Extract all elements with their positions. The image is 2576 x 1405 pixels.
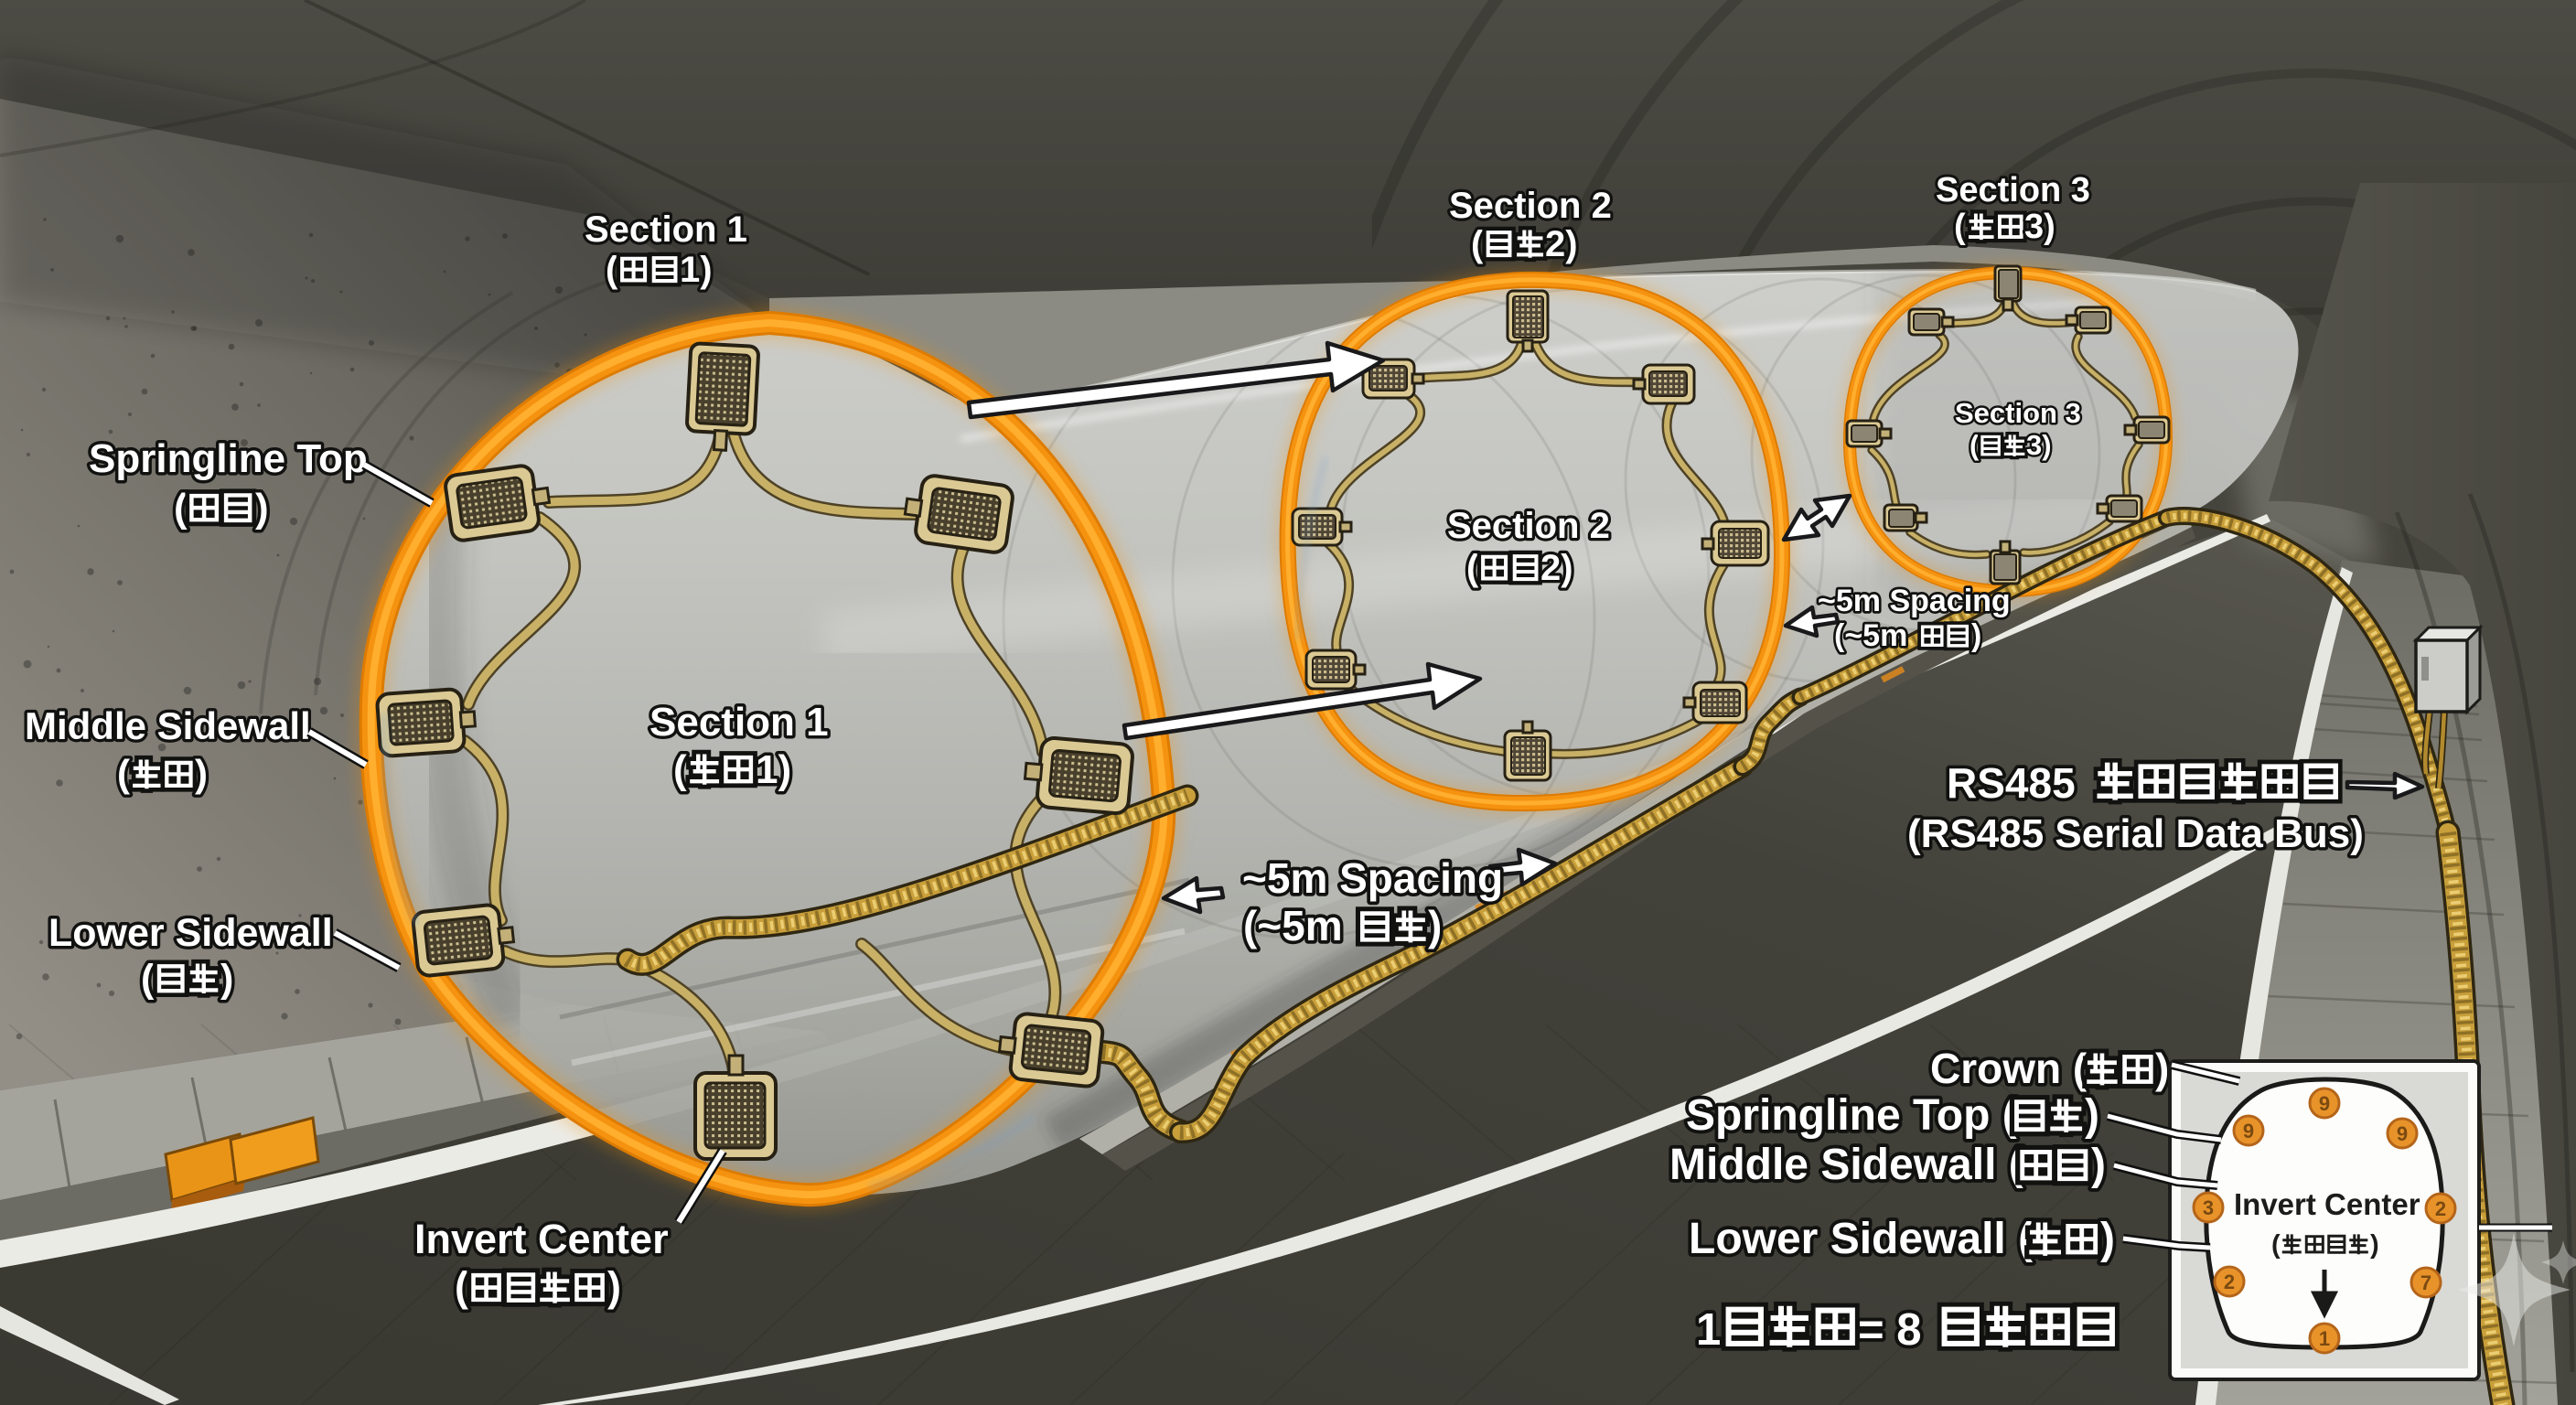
svg-text:): ): [1971, 618, 1981, 653]
svg-text:3): 3): [2024, 208, 2055, 246]
svg-text:(: (: [141, 957, 155, 1001]
svg-text:): ): [1428, 902, 1442, 949]
svg-text:): ): [607, 1263, 621, 1310]
svg-text:): ): [2091, 1141, 2106, 1189]
svg-text:7: 7: [2420, 1271, 2431, 1294]
svg-text:(: (: [1954, 208, 1966, 246]
svg-text:): ): [2100, 1215, 2115, 1263]
svg-text:9: 9: [2397, 1122, 2408, 1145]
svg-text:Invert Center: Invert Center: [2234, 1187, 2420, 1221]
svg-text:~5m Spacing: ~5m Spacing: [1242, 854, 1503, 902]
svg-text:(: (: [117, 752, 130, 795]
svg-text:2): 2): [1545, 224, 1578, 264]
svg-text:Lower Sidewall (: Lower Sidewall (: [1689, 1215, 2033, 1263]
svg-text:9: 9: [2319, 1092, 2330, 1115]
svg-text:): ): [220, 957, 233, 1001]
svg-text:1: 1: [2319, 1327, 2330, 1350]
svg-text:Section 3: Section 3: [1936, 171, 2090, 209]
svg-text:Section 2: Section 2: [1449, 186, 1612, 226]
svg-text:9: 9: [2243, 1120, 2254, 1142]
svg-text:): ): [2155, 1045, 2169, 1092]
svg-text:): ): [195, 752, 208, 795]
svg-text:(: (: [673, 747, 687, 792]
svg-text:(~5m: (~5m: [1834, 618, 1907, 653]
svg-text:(: (: [455, 1263, 468, 1310]
svg-text:1): 1): [680, 250, 713, 290]
svg-text:(RS485 Serial Data Bus): (RS485 Serial Data Bus): [1907, 811, 2364, 856]
svg-text:Lower Sidewall: Lower Sidewall: [48, 911, 333, 955]
svg-text:1: 1: [1696, 1305, 1721, 1355]
svg-text:): ): [255, 486, 269, 531]
svg-text:RS485: RS485: [1947, 759, 2076, 807]
svg-text:(~5m: (~5m: [1243, 902, 1343, 949]
svg-text:Springline Top: Springline Top: [89, 436, 368, 481]
svg-text:Section 3: Section 3: [1955, 397, 2081, 429]
svg-text:Springline Top (: Springline Top (: [1686, 1091, 2017, 1140]
svg-text:Middle Sidewall (: Middle Sidewall (: [1669, 1141, 2023, 1189]
svg-text:(: (: [1471, 224, 1484, 264]
svg-text:2: 2: [2224, 1271, 2235, 1293]
svg-text:2: 2: [2435, 1197, 2446, 1220]
svg-text:1): 1): [756, 747, 791, 792]
svg-text:Middle Sidewall: Middle Sidewall: [25, 704, 311, 747]
svg-text:Section 1: Section 1: [585, 209, 747, 250]
svg-text:Section 2: Section 2: [1447, 506, 1610, 546]
svg-text:Section 1: Section 1: [649, 700, 829, 745]
svg-text:= 8: = 8: [1858, 1305, 1921, 1355]
svg-text:2): 2): [1540, 548, 1573, 588]
svg-text:(: (: [2271, 1230, 2281, 1260]
svg-text:3: 3: [2203, 1196, 2214, 1219]
svg-text:Crown (: Crown (: [1930, 1045, 2088, 1092]
svg-text:Invert Center: Invert Center: [414, 1216, 669, 1262]
svg-text:): ): [2370, 1230, 2379, 1260]
svg-text:): ): [2085, 1091, 2099, 1140]
svg-text:3): 3): [2026, 429, 2052, 461]
svg-text:~5m Spacing: ~5m Spacing: [1818, 584, 2011, 618]
